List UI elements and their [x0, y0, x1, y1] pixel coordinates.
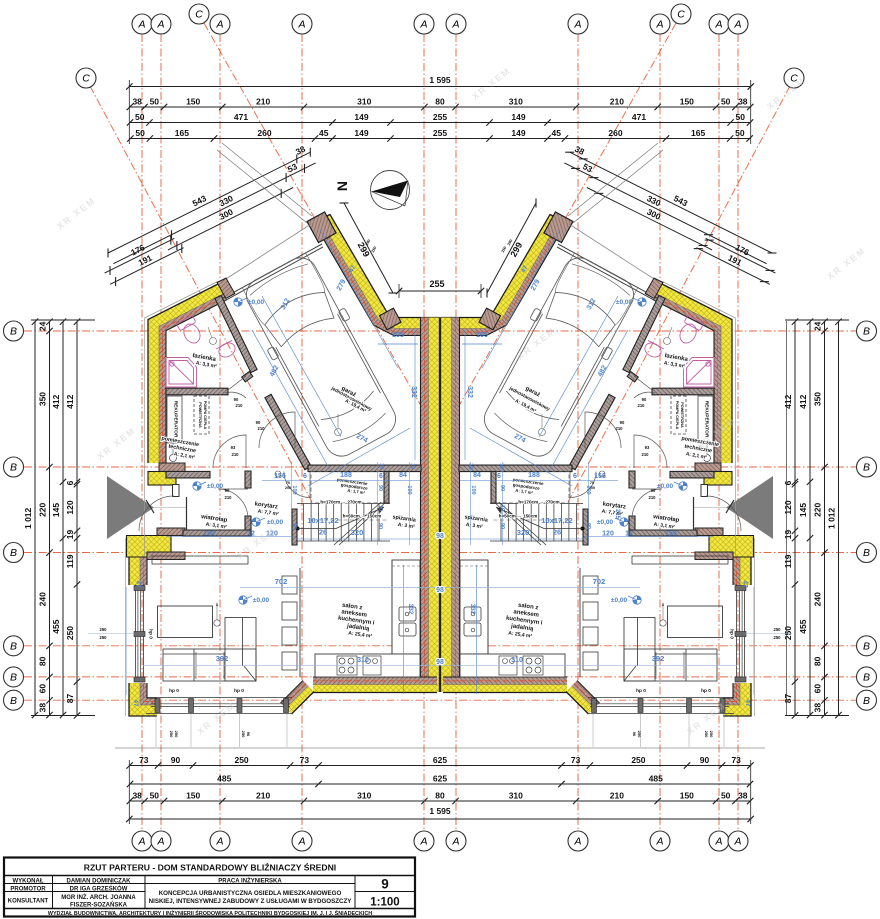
svg-text:1 012: 1 012: [23, 507, 33, 529]
svg-text:A: A: [156, 19, 164, 31]
svg-text:188: 188: [340, 472, 352, 479]
svg-text:47: 47: [135, 580, 142, 588]
svg-text:90: 90: [585, 523, 591, 529]
svg-text:310: 310: [509, 97, 523, 107]
svg-text:38: 38: [813, 703, 823, 713]
svg-text:84: 84: [473, 472, 481, 479]
svg-text:38: 38: [738, 97, 748, 107]
svg-text:1 012: 1 012: [827, 507, 837, 529]
svg-text:B: B: [10, 326, 17, 338]
svg-text:6: 6: [65, 480, 75, 485]
svg-text:702: 702: [593, 577, 606, 586]
svg-text:98: 98: [436, 587, 444, 594]
svg-text:50: 50: [721, 97, 731, 107]
svg-text:73: 73: [731, 755, 741, 765]
svg-text:NISKIEJ, INTENSYWNEJ ZABUDOWY: NISKIEJ, INTENSYWNEJ ZABUDOWY Z USŁUGAMI…: [149, 898, 353, 905]
svg-text:KONSULTANT: KONSULTANT: [8, 899, 49, 905]
svg-text:80: 80: [38, 656, 48, 666]
svg-text:A: A: [156, 836, 164, 848]
svg-text:1:100: 1:100: [370, 897, 399, 909]
svg-text:200: 200: [285, 486, 291, 490]
svg-text:119: 119: [783, 554, 793, 568]
svg-text:50: 50: [735, 128, 745, 138]
svg-text:119: 119: [65, 554, 75, 568]
svg-text:26: 26: [553, 528, 561, 537]
svg-text:310: 310: [511, 657, 523, 664]
svg-text:B: B: [863, 672, 870, 684]
svg-text:332: 332: [410, 386, 417, 398]
svg-text:10: 10: [499, 505, 505, 511]
svg-text:±0,00: ±0,00: [657, 483, 674, 490]
svg-text:PROMOTOR: PROMOTOR: [10, 886, 46, 892]
svg-text:100: 100: [406, 485, 412, 494]
svg-text:18: 18: [409, 463, 415, 469]
svg-text:47: 47: [132, 699, 139, 707]
svg-text:KONCEPCJA URBANISTYCZNA OSIEDL: KONCEPCJA URBANISTYCZNA OSIEDLA MIESZKAN…: [159, 890, 342, 897]
svg-text:A: A: [451, 19, 459, 31]
svg-text:hp 0: hp 0: [701, 688, 711, 694]
svg-text:50: 50: [135, 128, 145, 138]
svg-text:320: 320: [351, 528, 364, 537]
svg-text:100: 100: [291, 485, 297, 494]
svg-text:255: 255: [433, 112, 447, 122]
svg-text:260: 260: [257, 128, 271, 138]
svg-text:96: 96: [246, 732, 251, 737]
svg-text:332: 332: [469, 604, 476, 615]
svg-text:A: A: [714, 836, 722, 848]
svg-text:90: 90: [377, 523, 383, 529]
svg-text:250: 250: [241, 731, 246, 738]
svg-text:A: A: [655, 19, 663, 31]
svg-text:FISZER-SOZAŃSKA: FISZER-SOZAŃSKA: [70, 901, 128, 909]
svg-text:A: A: [573, 19, 581, 31]
svg-text:A: A: [419, 19, 427, 31]
svg-text:POMPA CIEPŁA: POMPA CIEPŁA: [675, 401, 679, 430]
svg-text:412: 412: [51, 394, 61, 408]
svg-text:210: 210: [610, 97, 624, 107]
svg-text:150: 150: [186, 97, 200, 107]
svg-text:A: A: [215, 19, 223, 31]
svg-text:165: 165: [175, 128, 189, 138]
svg-text:210: 210: [638, 403, 646, 408]
svg-text:70: 70: [590, 481, 594, 485]
svg-text:DAMIAN DOMINICZAK: DAMIAN DOMINICZAK: [67, 878, 132, 884]
svg-text:105: 105: [392, 332, 404, 339]
svg-text:19: 19: [65, 530, 75, 540]
svg-text:90: 90: [291, 523, 297, 529]
svg-text:N: N: [334, 181, 350, 191]
svg-text:392: 392: [216, 654, 229, 663]
svg-text:POWIETRZNA: POWIETRZNA: [680, 402, 684, 428]
svg-text:105: 105: [476, 332, 488, 339]
svg-text:90: 90: [171, 755, 181, 765]
svg-text:47: 47: [744, 699, 751, 707]
svg-text:87: 87: [65, 694, 75, 704]
svg-text:±0,00: ±0,00: [616, 299, 633, 306]
svg-text:18: 18: [498, 463, 504, 469]
svg-text:471: 471: [234, 112, 248, 122]
svg-text:220: 220: [813, 502, 823, 516]
svg-text:73: 73: [300, 755, 310, 765]
svg-text:6: 6: [573, 473, 577, 480]
svg-text:PRACA INŻYNIERSKA: PRACA INŻYNIERSKA: [218, 877, 282, 884]
svg-text:165: 165: [691, 128, 705, 138]
svg-text:332: 332: [407, 604, 414, 615]
svg-text:A: A: [137, 836, 145, 848]
svg-text:255: 255: [433, 128, 447, 138]
svg-text:455: 455: [798, 619, 808, 633]
svg-text:149: 149: [511, 112, 525, 122]
svg-text:50: 50: [135, 112, 145, 122]
svg-text:98: 98: [436, 659, 444, 666]
svg-text:210: 210: [256, 97, 270, 107]
svg-text:70: 70: [286, 481, 290, 485]
svg-text:210: 210: [236, 403, 244, 408]
svg-text:392: 392: [652, 654, 665, 663]
svg-text:625: 625: [433, 774, 447, 784]
svg-text:90: 90: [256, 420, 261, 425]
svg-text:98: 98: [436, 533, 444, 540]
svg-text:412: 412: [783, 394, 793, 408]
svg-text:B: B: [10, 672, 17, 684]
svg-text:26: 26: [319, 528, 327, 537]
svg-text:210: 210: [232, 452, 240, 457]
svg-text:±0,00: ±0,00: [267, 519, 284, 526]
svg-text:B: B: [863, 640, 870, 652]
svg-text:10: 10: [377, 505, 383, 511]
svg-text:250: 250: [65, 626, 75, 640]
svg-text:50: 50: [150, 97, 160, 107]
svg-text:WYDZIAŁ BUDOWNICTWA, ARCHITEKT: WYDZIAŁ BUDOWNICTWA, ARCHITEKTURY I INŻY…: [48, 910, 372, 917]
svg-text:h=50cm → 150cm: h=50cm → 150cm: [499, 514, 538, 519]
svg-text:412: 412: [65, 394, 75, 408]
svg-text:332: 332: [466, 386, 473, 398]
svg-text:310: 310: [509, 791, 523, 801]
svg-text:10x17,22: 10x17,22: [307, 516, 338, 525]
svg-text:702: 702: [275, 577, 288, 586]
svg-text:485: 485: [649, 774, 663, 784]
svg-text:hp 0: hp 0: [148, 629, 154, 639]
svg-text:90: 90: [499, 523, 505, 529]
svg-text:210: 210: [256, 791, 270, 801]
svg-text:90: 90: [377, 485, 383, 491]
svg-text:A: A: [297, 836, 305, 848]
svg-text:6: 6: [379, 473, 383, 480]
svg-text:A: A: [733, 836, 741, 848]
svg-text:350: 350: [813, 392, 823, 406]
svg-text:B: B: [863, 326, 870, 338]
svg-text:18: 18: [467, 463, 473, 469]
svg-text:471: 471: [632, 112, 646, 122]
svg-text:hp 0: hp 0: [169, 688, 179, 694]
svg-text:350: 350: [38, 392, 48, 406]
svg-text:A: A: [573, 836, 581, 848]
svg-text:250: 250: [774, 635, 782, 640]
svg-text:C: C: [677, 9, 685, 21]
svg-text:250: 250: [174, 731, 179, 738]
svg-text:255: 255: [429, 279, 444, 289]
svg-text:220: 220: [38, 502, 48, 516]
svg-text:90: 90: [700, 755, 710, 765]
svg-text:310: 310: [357, 791, 371, 801]
svg-text:90: 90: [651, 488, 656, 493]
svg-text:100: 100: [470, 485, 476, 494]
svg-text:24: 24: [813, 321, 823, 331]
svg-text:50: 50: [736, 112, 746, 122]
svg-text:REKUPERATOR: REKUPERATOR: [173, 401, 179, 438]
svg-text:93: 93: [231, 445, 236, 450]
svg-text:210: 210: [649, 495, 657, 500]
svg-text:±0,00: ±0,00: [253, 597, 270, 604]
svg-text:250: 250: [100, 635, 108, 640]
svg-text:90: 90: [642, 397, 647, 402]
svg-text:A: A: [451, 836, 459, 848]
svg-text:DR IGA GRZEŚKÓW: DR IGA GRZEŚKÓW: [70, 884, 128, 892]
svg-text:250: 250: [234, 755, 248, 765]
svg-text:POWIETRZNA: POWIETRZNA: [198, 402, 202, 428]
svg-text:hp 0: hp 0: [729, 629, 735, 639]
svg-text:hp 0: hp 0: [234, 688, 244, 694]
svg-text:A: A: [419, 836, 427, 848]
svg-text:210: 210: [258, 426, 266, 431]
svg-text:C: C: [195, 9, 203, 21]
svg-text:90: 90: [234, 397, 239, 402]
svg-text:38: 38: [132, 97, 142, 107]
svg-text:38: 38: [38, 703, 48, 713]
svg-text:625: 625: [433, 755, 447, 765]
svg-text:120: 120: [65, 500, 75, 514]
svg-text:B: B: [10, 547, 17, 559]
svg-text:145: 145: [798, 503, 808, 517]
svg-text:POMPA CIEPŁA: POMPA CIEPŁA: [203, 401, 207, 430]
svg-text:210: 210: [616, 426, 624, 431]
svg-text:87: 87: [783, 694, 793, 704]
svg-text:215: 215: [614, 509, 620, 520]
svg-text:6: 6: [497, 473, 501, 480]
svg-text:320: 320: [517, 528, 530, 537]
svg-text:RZUT PARTERU - DOM STANDARDO: RZUT PARTERU - DOM STANDARDOWY BLIŹNIACZ…: [84, 862, 336, 873]
svg-text:A: A: [733, 19, 741, 31]
svg-text:150: 150: [680, 97, 694, 107]
svg-text:210: 210: [225, 495, 233, 500]
svg-text:1 595: 1 595: [429, 806, 451, 816]
svg-text:h=170cm → 270cm: h=170cm → 270cm: [320, 500, 361, 505]
svg-text:250: 250: [774, 627, 782, 632]
svg-text:210: 210: [610, 791, 624, 801]
svg-text:260: 260: [608, 128, 622, 138]
svg-text:250: 250: [783, 626, 793, 640]
svg-text:WYKONAŁ: WYKONAŁ: [13, 878, 44, 884]
svg-text:80: 80: [435, 791, 445, 801]
svg-text:A: A: [215, 836, 223, 848]
svg-text:210: 210: [642, 452, 650, 457]
svg-text:38: 38: [738, 791, 748, 801]
svg-text:±0,00: ±0,00: [611, 597, 628, 604]
svg-text:6: 6: [783, 480, 793, 485]
svg-text:150: 150: [680, 791, 694, 801]
svg-text:250: 250: [169, 731, 174, 738]
svg-text:MGR INŻ. ARCH. JOANNA: MGR INŻ. ARCH. JOANNA: [61, 894, 136, 901]
svg-text:90: 90: [225, 488, 230, 493]
svg-text:±0,00: ±0,00: [597, 519, 614, 526]
svg-text:10x17,22: 10x17,22: [541, 516, 572, 525]
svg-text:B: B: [863, 695, 870, 707]
svg-text:310: 310: [357, 97, 371, 107]
svg-text:A: A: [714, 19, 722, 31]
svg-text:250: 250: [704, 731, 709, 738]
svg-text:A: A: [297, 19, 305, 31]
svg-text:149: 149: [354, 128, 368, 138]
svg-text:50: 50: [150, 791, 160, 801]
svg-text:B: B: [863, 462, 870, 474]
svg-text:50: 50: [721, 791, 731, 801]
svg-text:100: 100: [585, 485, 591, 494]
svg-text:C: C: [82, 73, 90, 85]
svg-text:310: 310: [357, 657, 369, 664]
svg-text:A: A: [655, 836, 663, 848]
svg-text:19: 19: [783, 530, 793, 540]
svg-text:B: B: [10, 695, 17, 707]
svg-text:18: 18: [378, 463, 384, 469]
svg-text:1 595: 1 595: [429, 75, 451, 85]
svg-text:47: 47: [742, 580, 749, 588]
svg-text:80: 80: [813, 656, 823, 666]
svg-text:B: B: [863, 547, 870, 559]
svg-text:38: 38: [132, 791, 142, 801]
svg-text:120: 120: [783, 500, 793, 514]
svg-text:24: 24: [38, 321, 48, 331]
svg-text:B: B: [10, 640, 17, 652]
svg-text:45: 45: [551, 128, 561, 138]
svg-text:90: 90: [620, 420, 625, 425]
svg-text:96: 96: [632, 732, 637, 737]
svg-text:B: B: [10, 462, 17, 474]
svg-text:188: 188: [528, 472, 540, 479]
svg-text:A: A: [137, 19, 145, 31]
svg-text:240: 240: [813, 592, 823, 606]
svg-text:240: 240: [38, 592, 48, 606]
svg-text:73: 73: [571, 755, 581, 765]
svg-text:9: 9: [381, 877, 389, 892]
svg-text:412: 412: [798, 394, 808, 408]
svg-text:455: 455: [51, 619, 61, 633]
svg-text:149: 149: [511, 128, 525, 138]
svg-text:±0,00: ±0,00: [207, 483, 224, 490]
svg-text:hp 0: hp 0: [636, 688, 646, 694]
svg-text:485: 485: [217, 774, 231, 784]
svg-text:150: 150: [186, 791, 200, 801]
svg-text:±0,00: ±0,00: [248, 299, 265, 306]
svg-text:250: 250: [100, 627, 108, 632]
svg-text:93: 93: [645, 445, 650, 450]
svg-text:h=50cm → 150cm: h=50cm → 150cm: [343, 514, 382, 519]
svg-text:60: 60: [38, 684, 48, 694]
svg-text:90: 90: [499, 485, 505, 491]
svg-text:6: 6: [303, 473, 307, 480]
svg-text:45: 45: [319, 128, 329, 138]
svg-text:145: 145: [51, 503, 61, 517]
svg-text:80: 80: [435, 97, 445, 107]
svg-text:84: 84: [399, 472, 407, 479]
svg-text:149: 149: [354, 112, 368, 122]
svg-text:60: 60: [813, 684, 823, 694]
svg-text:250: 250: [631, 755, 645, 765]
svg-text:73: 73: [139, 755, 149, 765]
svg-text:h=170cm → 270cm: h=170cm → 270cm: [518, 500, 559, 505]
